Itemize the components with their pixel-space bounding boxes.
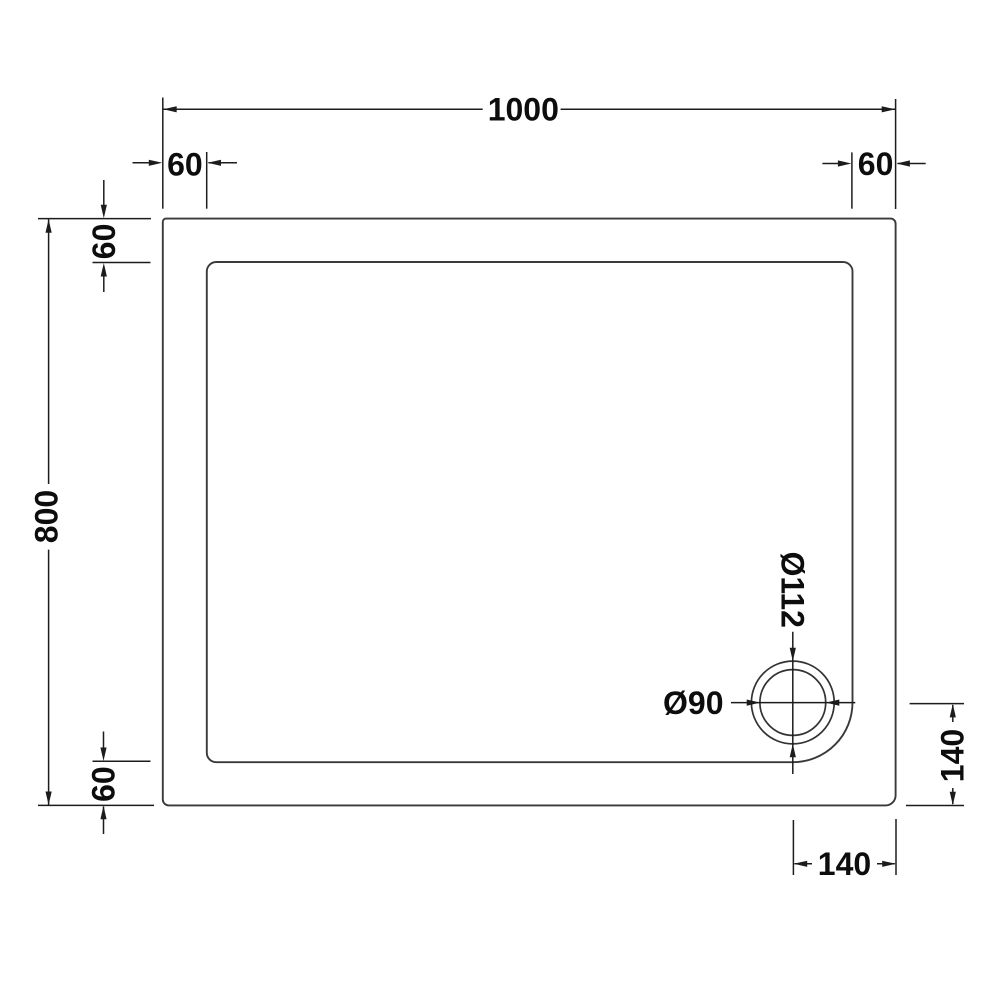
- svg-text:60: 60: [85, 766, 121, 802]
- svg-text:Ø112: Ø112: [774, 551, 810, 628]
- svg-text:60: 60: [86, 224, 122, 260]
- svg-text:140: 140: [818, 846, 871, 882]
- svg-text:Ø90: Ø90: [663, 685, 723, 721]
- svg-text:800: 800: [28, 490, 64, 543]
- svg-text:1000: 1000: [488, 91, 559, 127]
- svg-text:60: 60: [167, 146, 203, 182]
- svg-text:140: 140: [935, 729, 971, 782]
- svg-text:60: 60: [858, 146, 894, 182]
